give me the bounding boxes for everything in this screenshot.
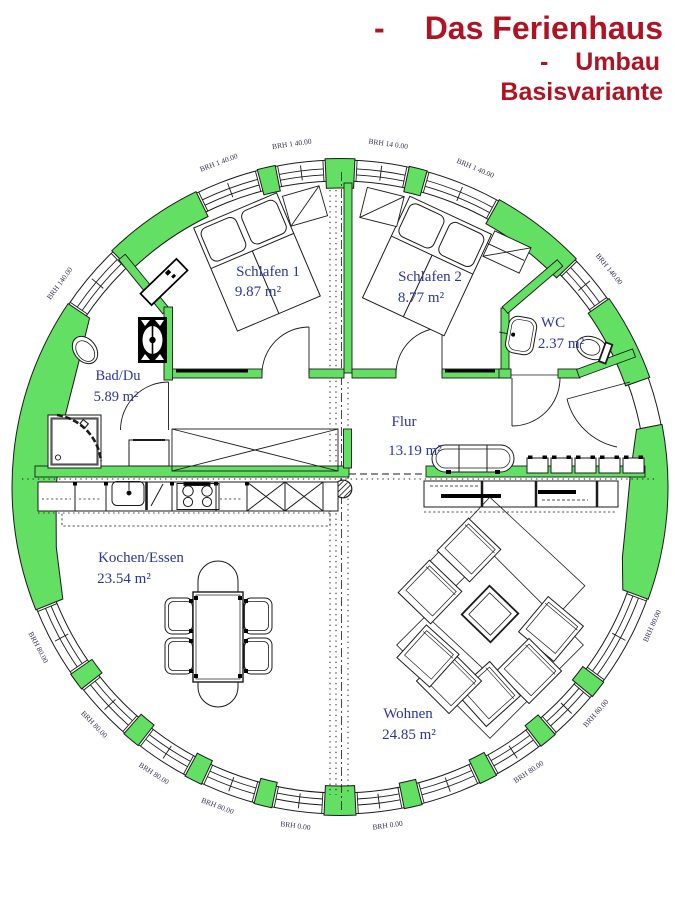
svg-text:BRH 1 40.00: BRH 1 40.00 <box>455 156 495 180</box>
svg-text:BRH 140.00: BRH 140.00 <box>45 265 75 301</box>
svg-text:2.37 m²: 2.37 m² <box>538 336 585 352</box>
svg-text:9.87 m²: 9.87 m² <box>235 284 282 300</box>
svg-text:8.77 m²: 8.77 m² <box>398 290 445 306</box>
svg-text:BRH 0.00: BRH 0.00 <box>280 819 312 832</box>
svg-text:Wohnen: Wohnen <box>383 706 433 722</box>
svg-text:Flur: Flur <box>391 414 416 430</box>
svg-text:13.19 m²: 13.19 m² <box>388 443 442 459</box>
svg-text:Schlafen 1: Schlafen 1 <box>236 264 300 280</box>
svg-text:BRH 80.00: BRH 80.00 <box>27 630 51 665</box>
svg-text:BRH 1 40.00: BRH 1 40.00 <box>198 151 239 173</box>
svg-text:BRH 0.00: BRH 0.00 <box>372 819 404 832</box>
svg-text:Schlafen 2: Schlafen 2 <box>398 269 462 285</box>
svg-text:23.54 m²: 23.54 m² <box>97 571 151 587</box>
svg-text:BRH 1 40.00: BRH 1 40.00 <box>271 137 312 151</box>
svg-text:24.85 m²: 24.85 m² <box>382 727 436 743</box>
svg-text:BRH 140.00: BRH 140.00 <box>594 251 625 286</box>
svg-text:Kochen/Essen: Kochen/Essen <box>98 550 184 566</box>
svg-text:BRH 80.00: BRH 80.00 <box>79 709 109 740</box>
svg-text:5.89 m²: 5.89 m² <box>94 389 139 405</box>
svg-text:Bad/Du: Bad/Du <box>95 368 140 384</box>
svg-text:BRH 80.00: BRH 80.00 <box>581 697 611 729</box>
svg-text:BRH 80.00: BRH 80.00 <box>200 796 235 817</box>
svg-text:WC: WC <box>541 315 565 331</box>
svg-text:BRH 14 0.00: BRH 14 0.00 <box>368 137 409 151</box>
svg-text:BRH 80.00: BRH 80.00 <box>641 608 663 643</box>
